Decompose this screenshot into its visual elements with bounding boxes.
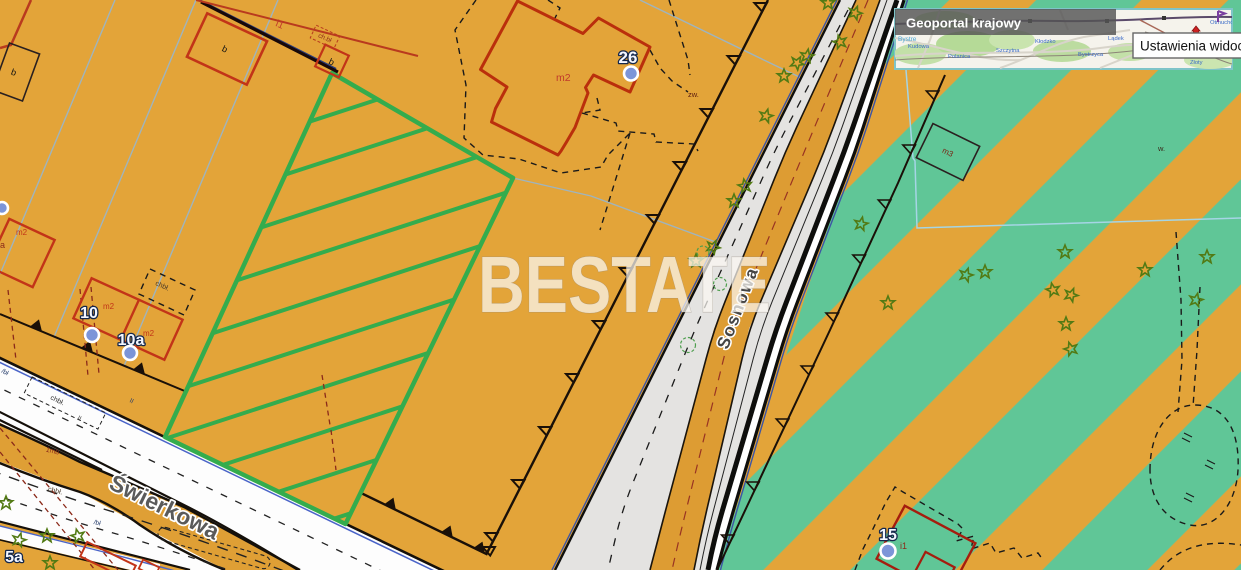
svg-text:Kudowa: Kudowa: [908, 44, 930, 50]
svg-text:Lądek: Lądek: [1108, 36, 1124, 42]
svg-text:m2: m2: [16, 228, 28, 237]
svg-text:Szczytna: Szczytna: [996, 48, 1020, 54]
svg-text:10: 10: [80, 305, 98, 322]
svg-text:w.: w.: [1157, 144, 1165, 153]
svg-text:Złoty: Złoty: [1190, 60, 1203, 66]
svg-text:26: 26: [619, 48, 638, 67]
svg-text:15: 15: [879, 527, 897, 544]
svg-text:i1: i1: [900, 541, 907, 551]
svg-text:m2: m2: [103, 302, 115, 311]
svg-text:Polanica: Polanica: [948, 54, 971, 60]
svg-text:m2: m2: [143, 329, 155, 338]
svg-text:Bystre: Bystre: [898, 36, 917, 43]
svg-text:Ustawienia widoczno: Ustawienia widoczno: [1140, 39, 1241, 54]
svg-text:zw.: zw.: [688, 90, 699, 99]
svg-text:Geoportal krajowy: Geoportal krajowy: [906, 16, 1022, 31]
svg-text:5a: 5a: [5, 549, 23, 566]
svg-text:BESTATE: BESTATE: [478, 241, 771, 330]
svg-text:m2: m2: [556, 72, 571, 84]
svg-text:Kłodzko: Kłodzko: [1035, 39, 1056, 45]
svg-text:a: a: [0, 240, 5, 250]
svg-text:Bystrzyca: Bystrzyca: [1078, 52, 1104, 58]
